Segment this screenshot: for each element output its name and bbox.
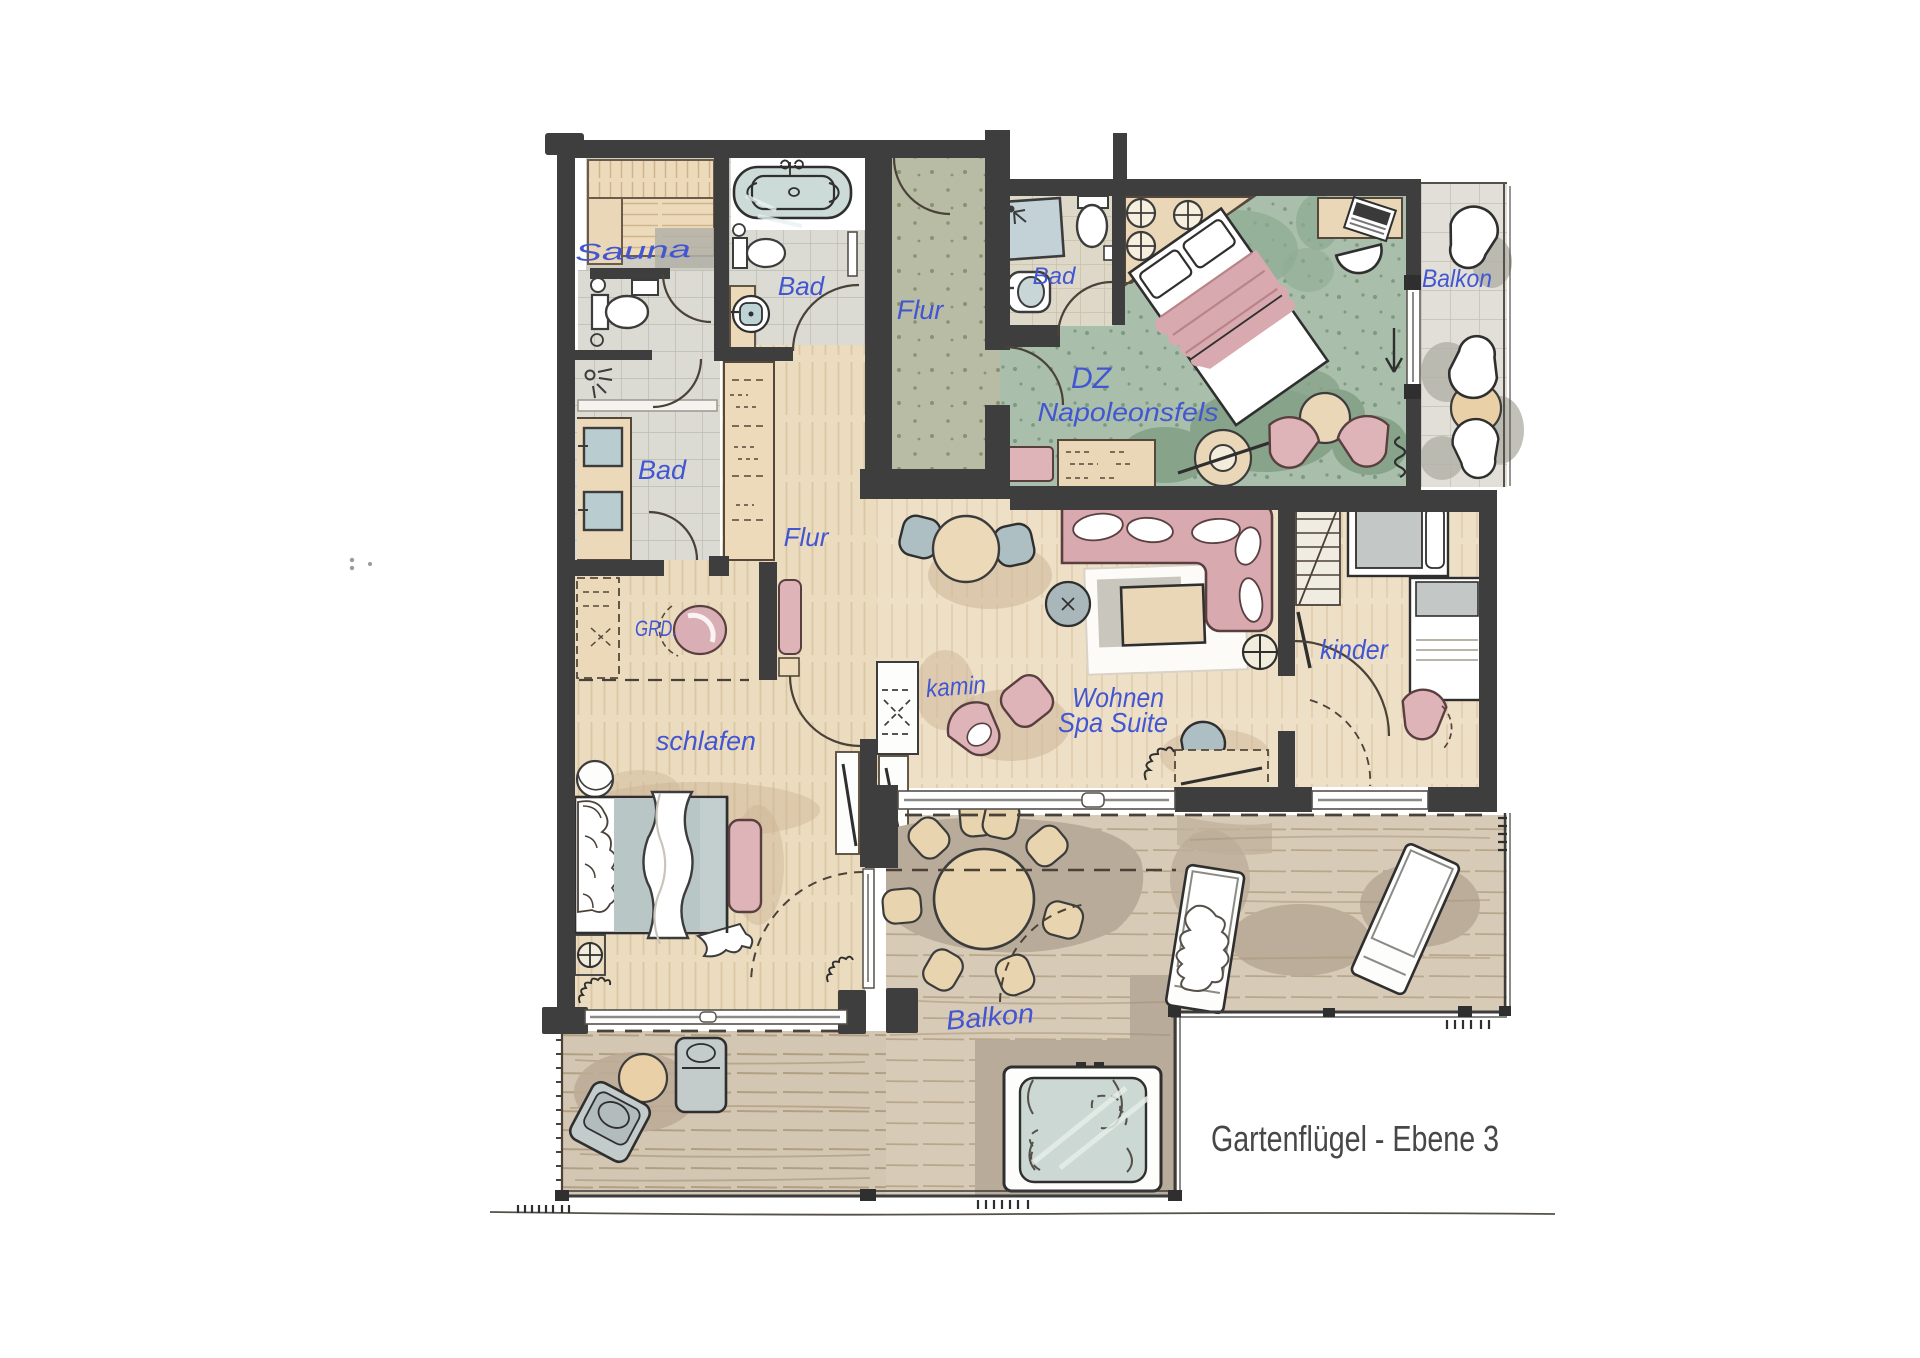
svg-text:Gartenflügel - Ebene 3: Gartenflügel - Ebene 3 [1211, 1118, 1499, 1159]
svg-text:Flur: Flur [897, 295, 945, 325]
svg-text:Flur: Flur [784, 522, 830, 552]
svg-text:DZ: DZ [1071, 362, 1113, 395]
svg-text:kamin: kamin [925, 671, 987, 703]
svg-text:schlafen: schlafen [656, 726, 756, 756]
svg-text:kinder: kinder [1320, 634, 1389, 665]
svg-text:Bad: Bad [638, 455, 687, 485]
svg-text:Bad: Bad [778, 271, 826, 301]
svg-text:GRD.: GRD. [635, 616, 677, 641]
svg-text:Spa Suite: Spa Suite [1058, 707, 1168, 738]
svg-text:Balkon: Balkon [1422, 265, 1492, 293]
svg-text:Bad: Bad [1033, 263, 1076, 290]
svg-text:Napoleonsfels: Napoleonsfels [1038, 397, 1219, 427]
svg-text:Sauna: Sauna [575, 236, 692, 267]
